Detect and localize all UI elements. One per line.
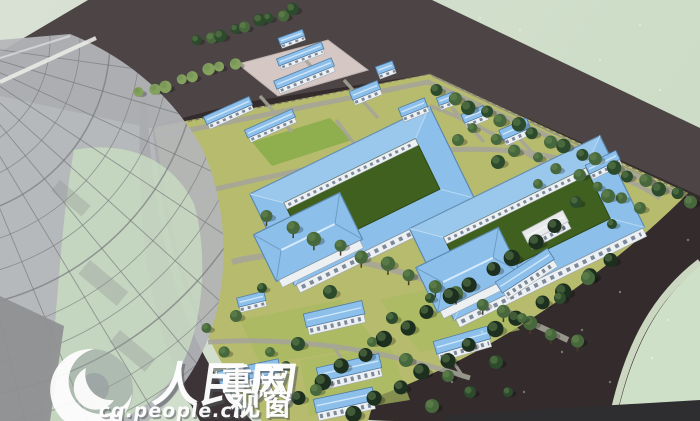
watermark-url: cq.people.cn: [97, 399, 249, 421]
watermark: 人民网 人民网 cq.people.cn cq.people.cn 重庆 重庆 …: [50, 349, 304, 421]
site-plan-rendering: 人民网 人民网 cq.people.cn cq.people.cn 重庆 重庆 …: [0, 0, 700, 421]
watermark-region-line2: 视窗: [230, 388, 294, 421]
photographed-poster: 人民网 人民网 cq.people.cn cq.people.cn 重庆 重庆 …: [0, 0, 700, 421]
